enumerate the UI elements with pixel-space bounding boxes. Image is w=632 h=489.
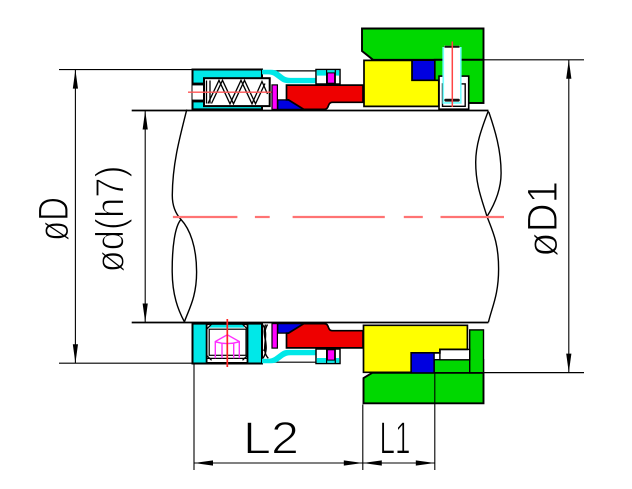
svg-text:øD: øD [30,197,78,241]
svg-text:ød(h7): ød(h7) [89,166,133,273]
svg-text:L1: L1 [380,413,411,464]
svg-text:øD1: øD1 [519,181,567,257]
svg-text:L2: L2 [243,413,299,464]
